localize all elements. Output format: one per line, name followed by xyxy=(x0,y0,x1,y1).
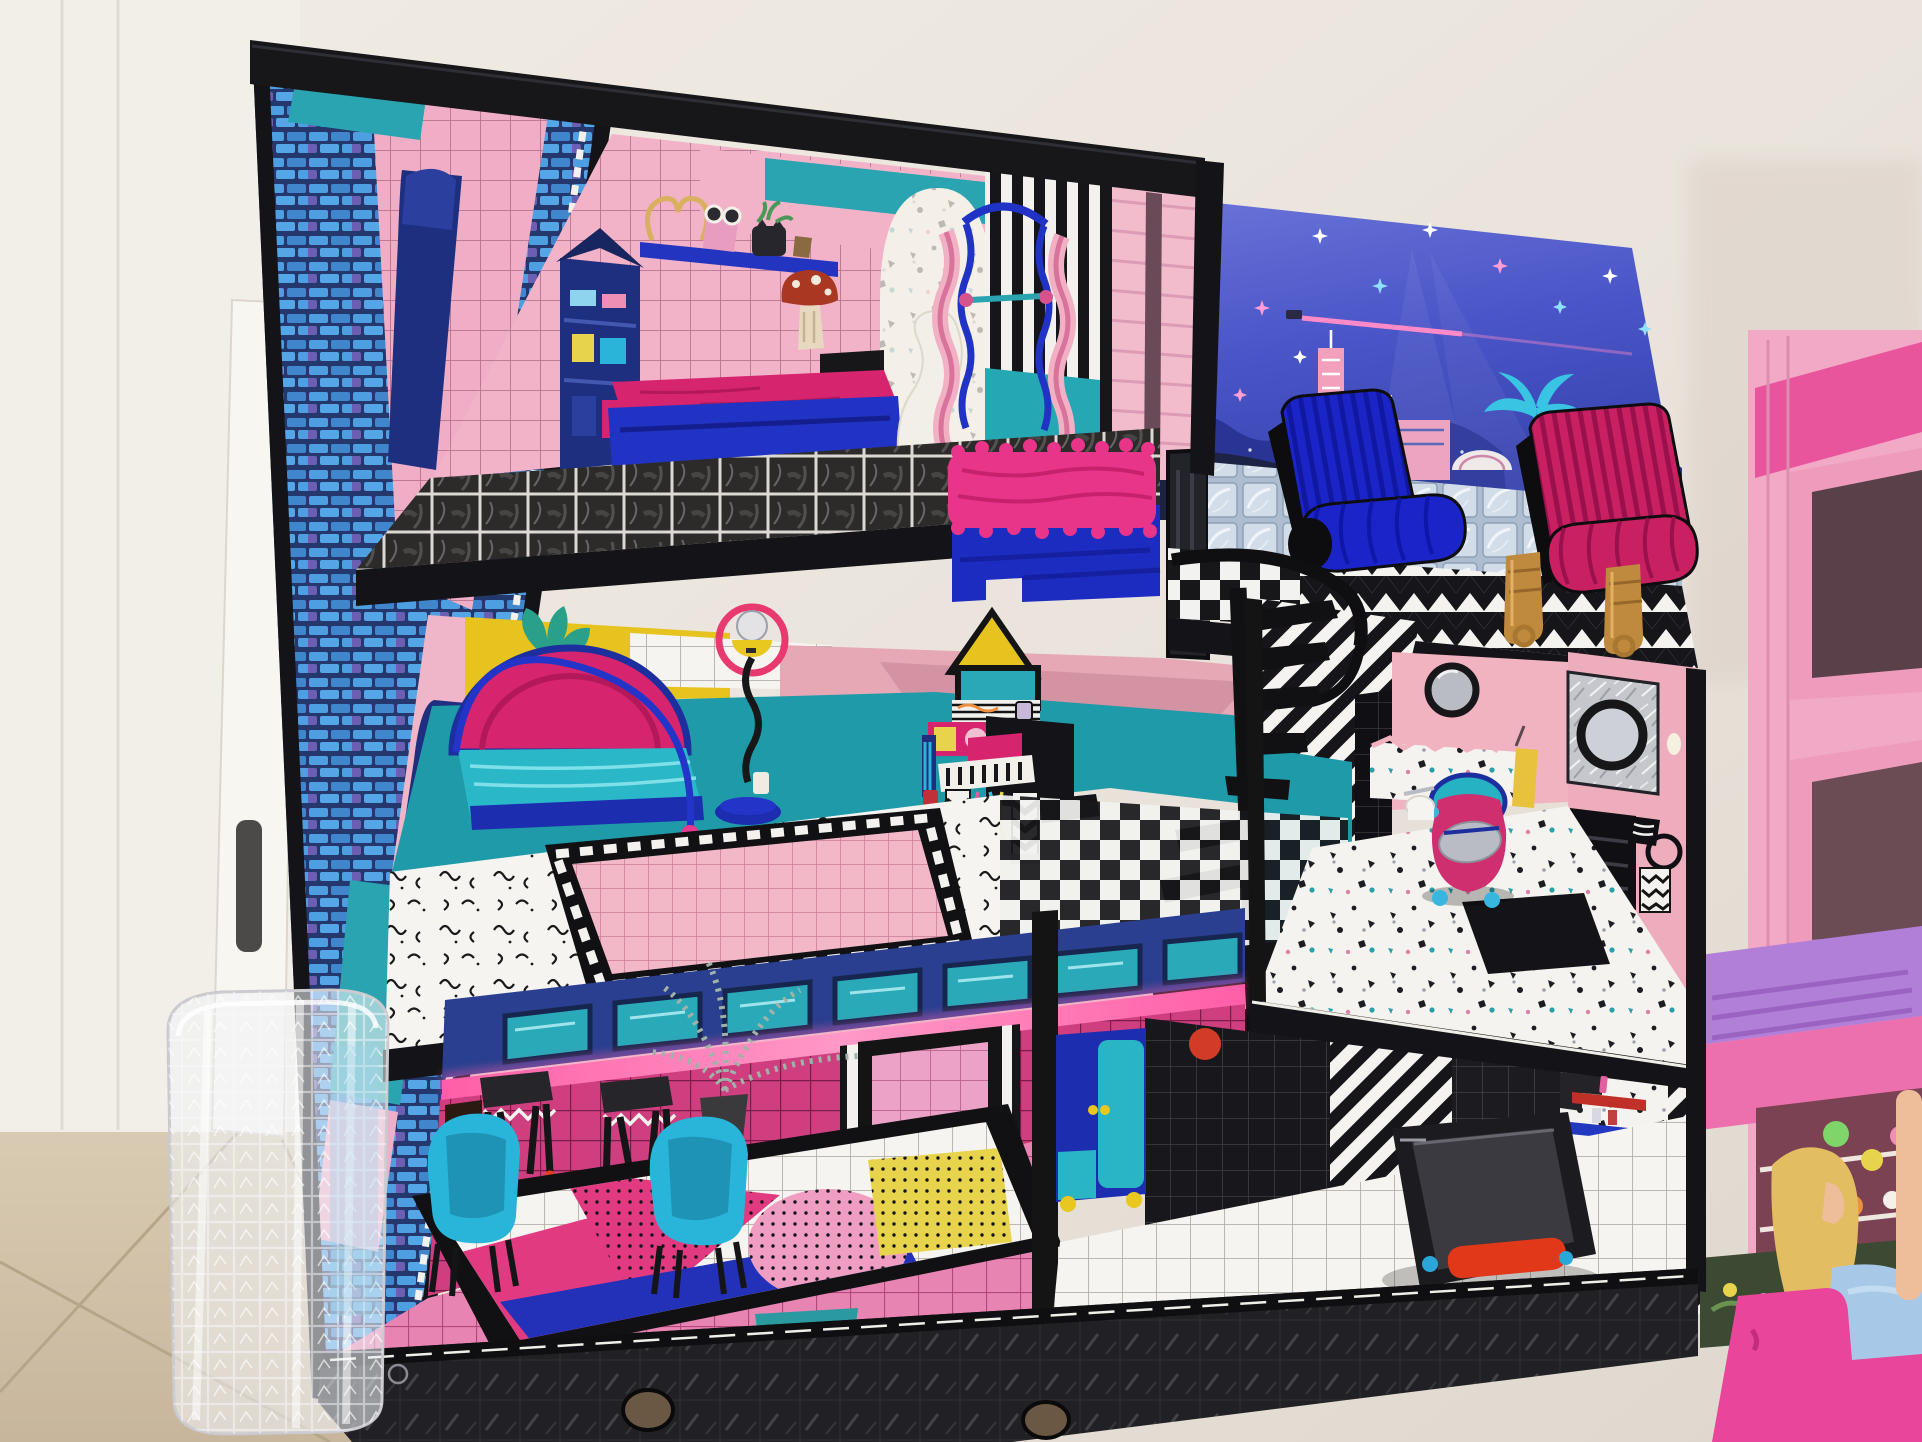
ladder-rung xyxy=(970,296,1042,300)
knob-4 xyxy=(1559,1251,1573,1265)
chair1-inner xyxy=(446,1133,506,1218)
gold-boot-2 xyxy=(1604,564,1643,654)
lamp-slot xyxy=(746,648,756,653)
potty-foot-r xyxy=(1484,892,1500,908)
cabinet-foot-r xyxy=(1126,1192,1142,1208)
pink-lounge-chair xyxy=(1516,404,1697,592)
waste-basket xyxy=(168,990,388,1434)
cat-planter xyxy=(752,226,786,256)
sunglasses-r xyxy=(724,208,740,224)
right-frame-edge xyxy=(1686,668,1706,1292)
porthole-mirror xyxy=(1428,666,1476,714)
bulb-bubble xyxy=(737,611,767,641)
side-arch-top xyxy=(402,169,456,230)
knob-1 xyxy=(1422,1256,1438,1272)
round-black-mirror xyxy=(1581,704,1643,766)
window1-opening xyxy=(1812,470,1922,678)
second-doll-limb xyxy=(1896,1090,1922,1300)
scene-canvas xyxy=(0,0,1922,1442)
cabinet-knob-2 xyxy=(1100,1105,1110,1115)
door-handle xyxy=(236,820,262,952)
red-dot xyxy=(1189,1028,1221,1060)
partition-wall xyxy=(1032,910,1058,1325)
cabinet-foot-l xyxy=(1060,1196,1076,1212)
potty-foot-l xyxy=(1432,890,1448,906)
rung-knob-r xyxy=(1039,290,1053,304)
fur-mattress xyxy=(948,452,1156,528)
sunglasses-l xyxy=(706,206,722,222)
glider xyxy=(1286,310,1302,319)
gold-boot-1 xyxy=(1504,552,1543,644)
cabinet-knob-1 xyxy=(1088,1105,1098,1115)
yellow-towel xyxy=(1512,748,1538,808)
blue-cabinet xyxy=(1056,1028,1146,1212)
small-pot xyxy=(793,236,812,258)
basket-blue-tint xyxy=(330,1046,378,1316)
lamp-base-top xyxy=(720,797,776,815)
rung-knob-l xyxy=(959,293,973,307)
finger-hole-1 xyxy=(623,1390,673,1430)
tiny-can-1 xyxy=(1592,1108,1601,1123)
window2-opening xyxy=(1812,762,1922,940)
photo-scene xyxy=(0,0,1922,1442)
panel-bag xyxy=(1016,702,1032,720)
sconce xyxy=(1667,733,1681,755)
finger-hole-2 xyxy=(1023,1402,1069,1438)
sticker-1 xyxy=(934,727,956,751)
tiny-can-2 xyxy=(1608,1110,1617,1125)
chair2-inner xyxy=(668,1137,732,1220)
cabinet-panel xyxy=(1058,1150,1096,1200)
white-door xyxy=(0,0,300,1136)
fur-blanket-bed xyxy=(948,438,1160,602)
outlet-decal xyxy=(753,772,769,794)
